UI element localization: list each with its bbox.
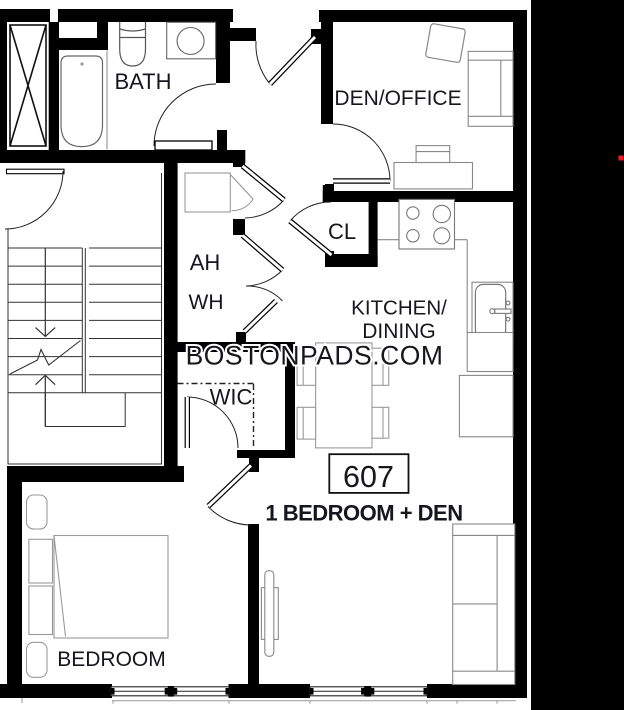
svg-text:KITCHEN/: KITCHEN/ [351,297,447,320]
svg-text:BOSTONPADS.COM: BOSTONPADS.COM [186,341,444,371]
svg-text:BEDROOM: BEDROOM [57,648,166,671]
svg-text:WIC: WIC [210,385,253,410]
svg-text:WH: WH [189,291,224,314]
svg-text:607: 607 [343,460,394,494]
svg-text:DEN/OFFICE: DEN/OFFICE [334,87,461,110]
svg-text:BATH: BATH [114,69,171,94]
svg-text:1 BEDROOM + DEN: 1 BEDROOM + DEN [265,501,462,526]
svg-text:AH: AH [190,250,221,275]
svg-text:CL: CL [328,219,356,244]
